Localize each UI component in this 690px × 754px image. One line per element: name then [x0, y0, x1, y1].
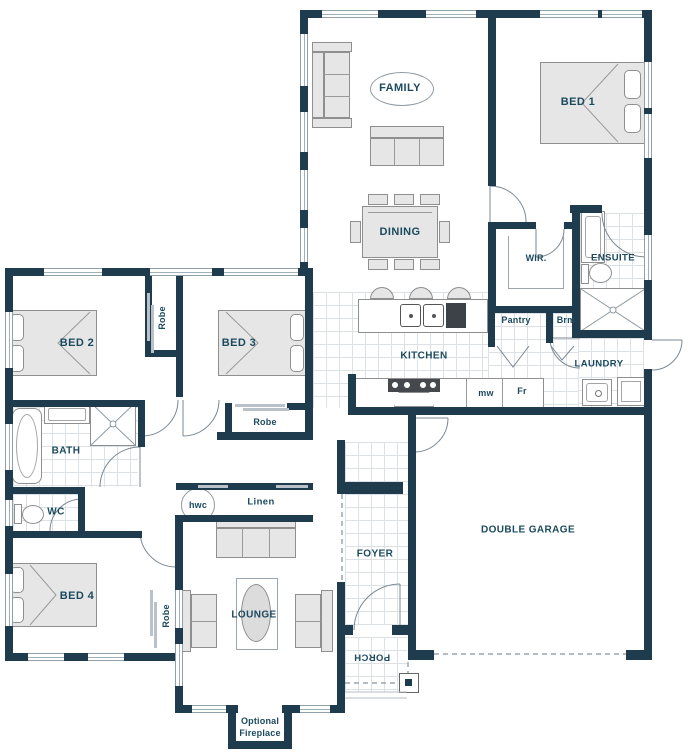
- room-label-garage: DOUBLE GARAGE: [481, 525, 575, 536]
- window: [5, 312, 13, 368]
- hwc-label: hwc: [189, 500, 207, 510]
- bed1-pillow: [624, 70, 641, 99]
- wall-segment: [488, 222, 536, 229]
- washing-machine-inner: [621, 381, 641, 402]
- window: [322, 10, 378, 18]
- sofa-cushion-line: [419, 138, 420, 166]
- cooktop-burner: [420, 382, 426, 388]
- wall-segment: [546, 313, 553, 343]
- family-sofa-back: [312, 52, 324, 118]
- window: [88, 653, 124, 661]
- wall-segment: [337, 582, 345, 713]
- wall-segment: [5, 400, 145, 407]
- window: [300, 34, 308, 86]
- room-label-bath: BATH: [52, 446, 81, 457]
- window: [602, 10, 642, 18]
- wall-segment: [348, 407, 652, 415]
- window: [5, 424, 13, 470]
- window: [426, 10, 476, 18]
- linen-sliding-door: [198, 485, 228, 488]
- room-label-foyer: FOYER: [357, 549, 393, 560]
- wc-toilet: [22, 505, 44, 524]
- robe-sliding-door: [243, 408, 289, 411]
- room-label-kitchen: KITCHEN: [400, 351, 447, 362]
- window: [644, 114, 652, 158]
- window: [300, 705, 330, 713]
- wall-segment: [408, 650, 434, 660]
- wall-segment: [392, 625, 408, 635]
- dining-chair: [368, 194, 388, 205]
- robe-sliding-door: [151, 305, 154, 353]
- bench-divider: [466, 378, 467, 408]
- robe-sliding-door: [235, 404, 285, 407]
- bed2-door: [142, 400, 178, 436]
- wall-segment: [488, 313, 495, 347]
- chair-cushion-line: [191, 621, 217, 622]
- kitchen-stool: [409, 287, 433, 299]
- window: [300, 170, 308, 210]
- bed3-door: [183, 400, 219, 436]
- label-fireplace-line2: Fireplace: [239, 728, 280, 738]
- wall-segment: [176, 276, 183, 397]
- room-label-linen: Linen: [247, 497, 274, 508]
- family-sofa2-back: [370, 126, 444, 138]
- dining-chair: [394, 259, 414, 270]
- bed1-door: [490, 186, 526, 222]
- room-label-wir: WIR.: [526, 253, 547, 263]
- wall-segment: [78, 487, 85, 533]
- ensuite-toilet-cistern: [581, 264, 589, 284]
- room-label-robe-bed4: Robe: [161, 604, 171, 627]
- wall-segment: [348, 374, 356, 407]
- wall-segment: [337, 625, 353, 635]
- linen-sliding-door: [276, 485, 308, 488]
- oven-front: [394, 392, 434, 407]
- wall-segment: [5, 531, 142, 538]
- window: [540, 10, 598, 18]
- wall-segment: [305, 268, 313, 440]
- floor-plan: hwc: [0, 0, 690, 754]
- porch-step-lines: [345, 692, 407, 698]
- cooktop-burner: [392, 382, 398, 388]
- family-sofa2-seat: [370, 138, 444, 166]
- wall-segment: [138, 400, 145, 447]
- room-label-family: FAMILY: [379, 82, 421, 94]
- window: [192, 705, 226, 713]
- room-label-bed4: BED 4: [60, 590, 94, 602]
- label-microwave: mw: [478, 388, 493, 398]
- room-label-bed3: BED 3: [222, 337, 256, 349]
- bench-divider: [502, 378, 503, 408]
- dining-chair: [420, 259, 440, 270]
- porch-floor-tiles: [345, 637, 407, 692]
- window: [175, 590, 183, 628]
- family-sofa-seat: [324, 52, 350, 118]
- dishwasher: [446, 303, 466, 328]
- dining-chair: [439, 221, 450, 243]
- kitchen-bench: [352, 378, 544, 408]
- window: [175, 644, 183, 686]
- room-label-laundry: LAUNDRY: [575, 359, 624, 370]
- sofa-cushion-line: [394, 138, 395, 166]
- sofa-cushion-line: [269, 528, 270, 558]
- window: [300, 228, 308, 262]
- bed1-pillow: [624, 104, 641, 133]
- window: [644, 235, 652, 280]
- wall-segment: [578, 330, 652, 338]
- window: [300, 112, 308, 152]
- window: [224, 268, 298, 276]
- porch-post-core: [405, 679, 412, 686]
- chair-cushion-line: [295, 621, 321, 622]
- window: [644, 62, 652, 108]
- robe-sliding-door: [150, 590, 153, 636]
- bed3-pillow: [290, 314, 304, 341]
- sink-drain: [432, 314, 436, 318]
- dining-chair: [350, 221, 361, 243]
- wall-segment: [488, 229, 496, 313]
- label-fridge: Fr: [517, 386, 526, 396]
- room-label-pantry: Pantry: [501, 315, 530, 325]
- family-sofa-arm: [312, 118, 352, 128]
- wall-segment: [488, 306, 580, 313]
- ensuite-toilet: [589, 263, 612, 283]
- wall-segment: [488, 18, 496, 186]
- wall-segment: [564, 222, 572, 229]
- label-fireplace-line1: Optional: [241, 716, 279, 726]
- window: [5, 574, 13, 626]
- laundry-exterior-door: [652, 340, 682, 370]
- cooktop-burner: [430, 382, 436, 388]
- lounge-armchair-back: [321, 590, 333, 652]
- dining-chair: [394, 194, 414, 205]
- wall-segment: [287, 403, 313, 410]
- wall-segment: [5, 487, 85, 494]
- kitchen-stool: [370, 287, 394, 299]
- foyer-floor-tiles: [345, 442, 408, 625]
- window: [44, 268, 102, 276]
- room-label-lounge: LOUNGE: [231, 610, 276, 621]
- window: [28, 653, 64, 661]
- fireplace-wall: [228, 741, 292, 749]
- ensuite-shower: [580, 288, 646, 332]
- wall-segment: [408, 415, 416, 652]
- room-label-broom: Brm: [557, 315, 576, 325]
- room-label-bed2: BED 2: [60, 337, 94, 349]
- sink-drain: [409, 314, 413, 318]
- room-label-bed1: BED 1: [561, 96, 595, 108]
- room-label-wc: WC: [47, 507, 64, 518]
- dining-chair: [368, 259, 388, 270]
- laundry-drain: [595, 390, 602, 397]
- bed3-pillow: [290, 345, 304, 372]
- kitchen-stool: [447, 287, 471, 299]
- wall-segment: [337, 482, 403, 494]
- wall-segment: [176, 515, 313, 522]
- bath-shower: [90, 402, 136, 446]
- robe-sliding-door: [154, 602, 157, 648]
- wall-segment: [217, 432, 313, 440]
- wall-segment: [626, 650, 652, 660]
- wall-segment: [337, 440, 345, 483]
- garage-access-door: [414, 418, 448, 452]
- room-label-porch: PORCH: [354, 652, 390, 663]
- lounge-sofa-seat: [216, 528, 296, 558]
- sofa-cushion-line: [324, 96, 350, 97]
- room-label-robe-bed3: Robe: [253, 417, 276, 427]
- room-label-robe-mid: Robe: [157, 306, 167, 329]
- window: [5, 500, 13, 526]
- bath-basin: [48, 408, 86, 421]
- wall-segment: [570, 205, 602, 213]
- wc-cistern: [14, 504, 22, 524]
- room-label-dining: DINING: [380, 226, 421, 238]
- cooktop-burner: [404, 382, 410, 388]
- sofa-cushion-line: [242, 528, 243, 558]
- family-sofa-chaise: [312, 42, 352, 52]
- table-edge: [368, 212, 432, 213]
- porch-steps: [345, 692, 407, 698]
- dining-chair: [420, 194, 440, 205]
- sofa-cushion-line: [324, 74, 350, 75]
- bed4-door: [140, 531, 176, 567]
- bathtub-basin: [16, 414, 38, 478]
- window: [150, 268, 212, 276]
- robe-sliding-door: [147, 293, 150, 341]
- room-label-ensuite: ENSUITE: [591, 253, 635, 264]
